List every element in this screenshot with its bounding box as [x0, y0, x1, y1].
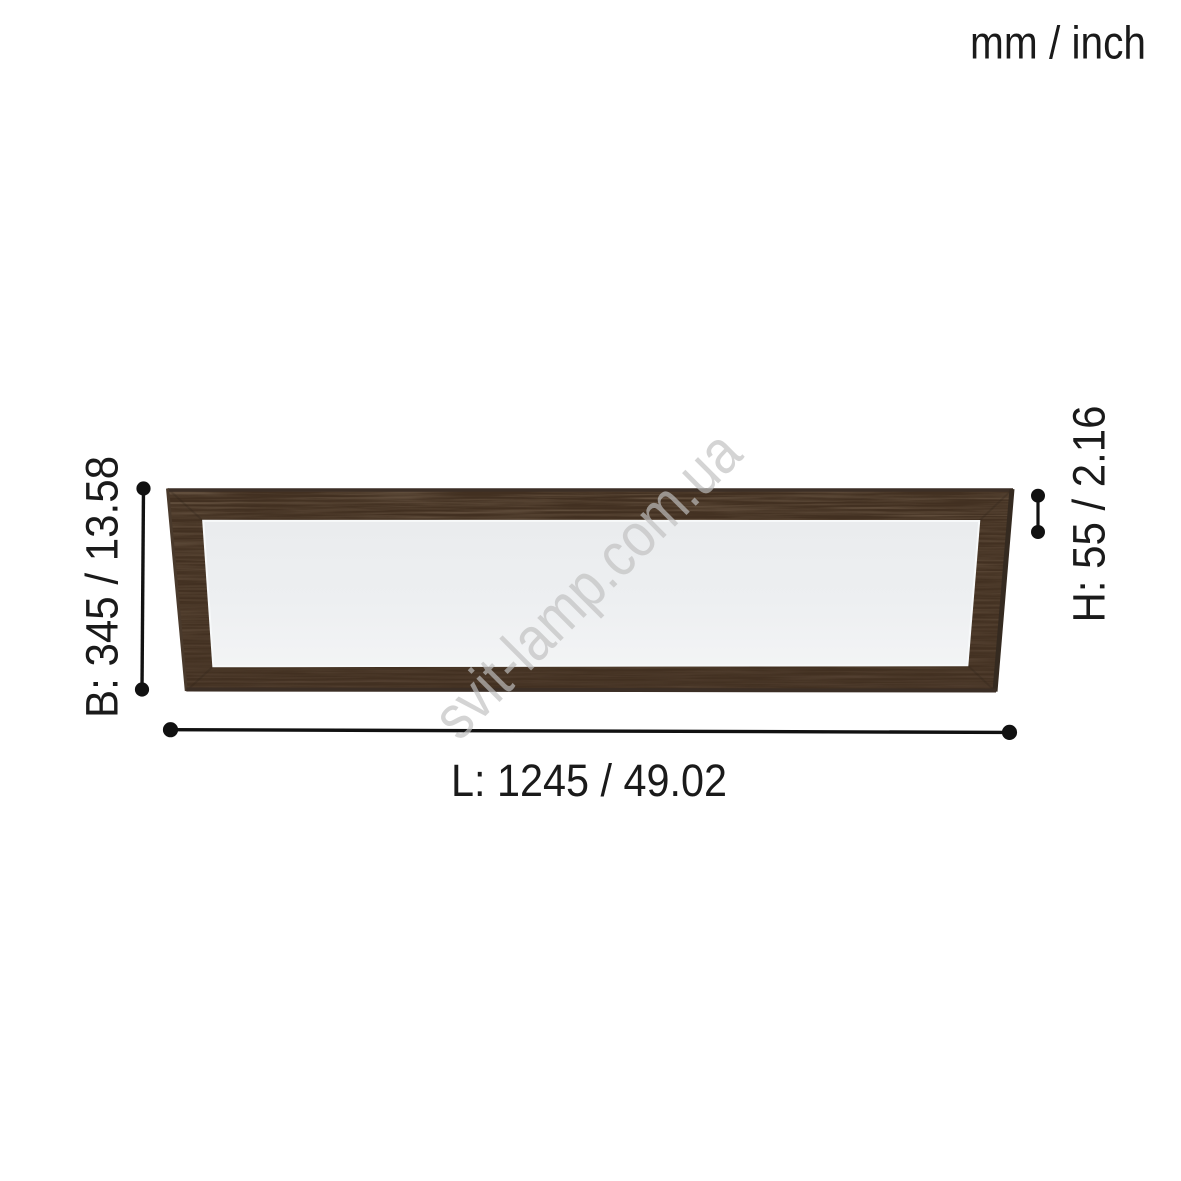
svg-text:mm / inch: mm / inch: [970, 17, 1146, 69]
svg-text:B: 345 / 13.58: B: 345 / 13.58: [77, 456, 128, 718]
svg-text:H: 55 / 2.16: H: 55 / 2.16: [1064, 406, 1115, 623]
svg-text:L: 1245 / 49.02: L: 1245 / 49.02: [451, 755, 727, 806]
